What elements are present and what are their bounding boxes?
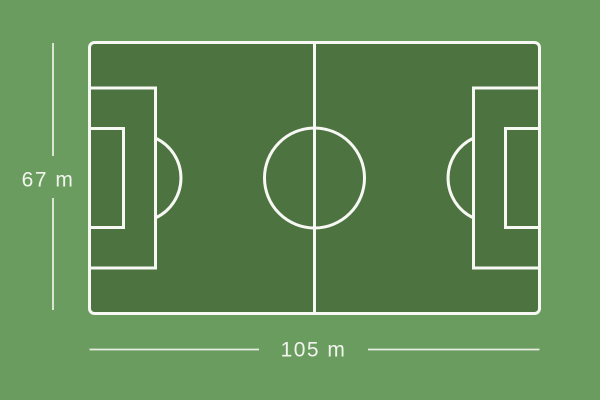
pitch-diagram: 67 m 105 m <box>0 0 600 400</box>
pitch-diagram-canvas: 67 m 105 m <box>0 0 600 400</box>
width-dimension-label: 105 m <box>281 339 347 362</box>
height-dimension: 67 m <box>22 43 75 310</box>
height-dimension-label: 67 m <box>22 169 75 192</box>
width-dimension: 105 m <box>90 339 540 362</box>
